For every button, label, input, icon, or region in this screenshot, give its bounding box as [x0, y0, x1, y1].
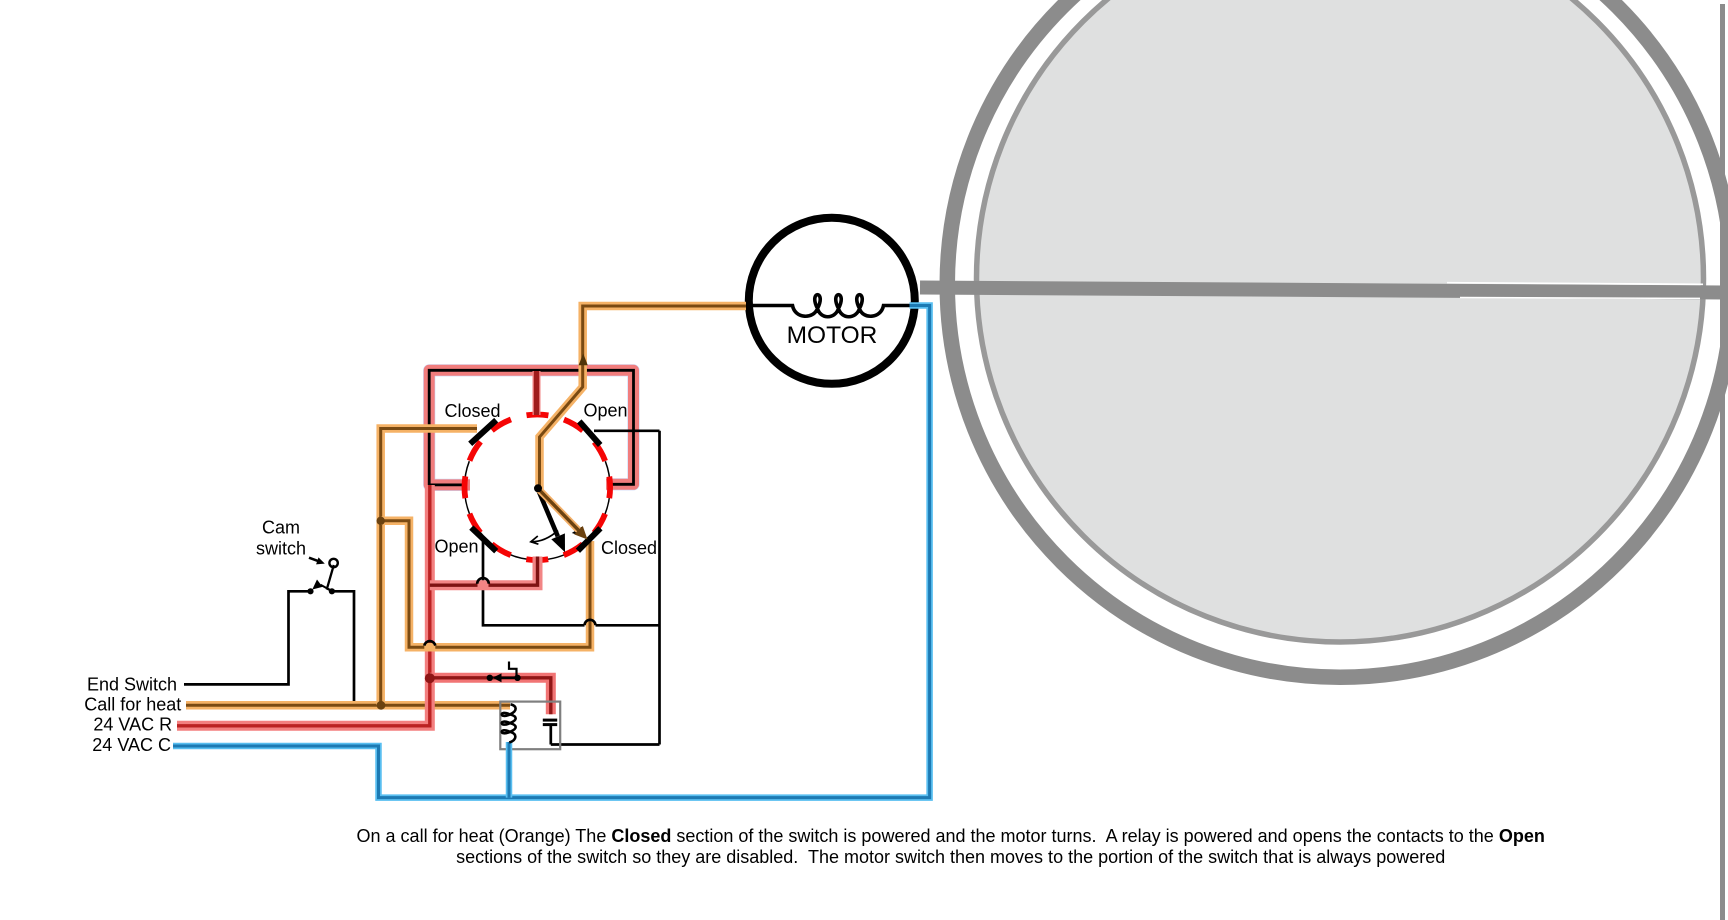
svg-text:Call for heat: Call for heat: [84, 695, 181, 715]
svg-text:Open: Open: [435, 537, 479, 557]
svg-text:switch: switch: [256, 539, 306, 559]
svg-text:24 VAC R: 24 VAC R: [93, 715, 172, 735]
svg-text:24 VAC C: 24 VAC C: [92, 735, 171, 755]
svg-text:End Switch: End Switch: [87, 674, 177, 694]
svg-text:Open: Open: [584, 401, 628, 421]
svg-text:sections of the switch so they: sections of the switch so they are disab…: [456, 847, 1445, 867]
svg-text:Closed: Closed: [445, 401, 501, 421]
svg-text:MOTOR: MOTOR: [787, 322, 878, 349]
svg-text:Cam: Cam: [262, 518, 300, 538]
svg-text:On a call for heat (Orange) Th: On a call for heat (Orange) The Closed s…: [357, 826, 1545, 846]
svg-text:Closed: Closed: [601, 538, 657, 558]
